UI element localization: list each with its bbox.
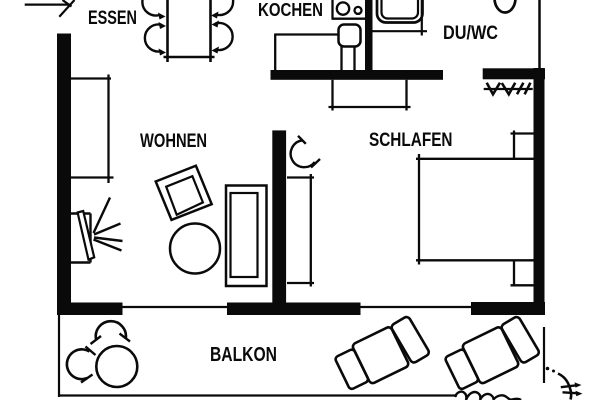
svg-text:DU/WC: DU/WC <box>443 23 498 44</box>
svg-text:BALKON: BALKON <box>210 344 277 366</box>
svg-text:WOHNEN: WOHNEN <box>140 131 207 152</box>
svg-text:SCHLAFEN: SCHLAFEN <box>369 129 453 151</box>
svg-text:KOCHEN: KOCHEN <box>258 0 323 20</box>
svg-text:ESSEN: ESSEN <box>88 8 137 29</box>
